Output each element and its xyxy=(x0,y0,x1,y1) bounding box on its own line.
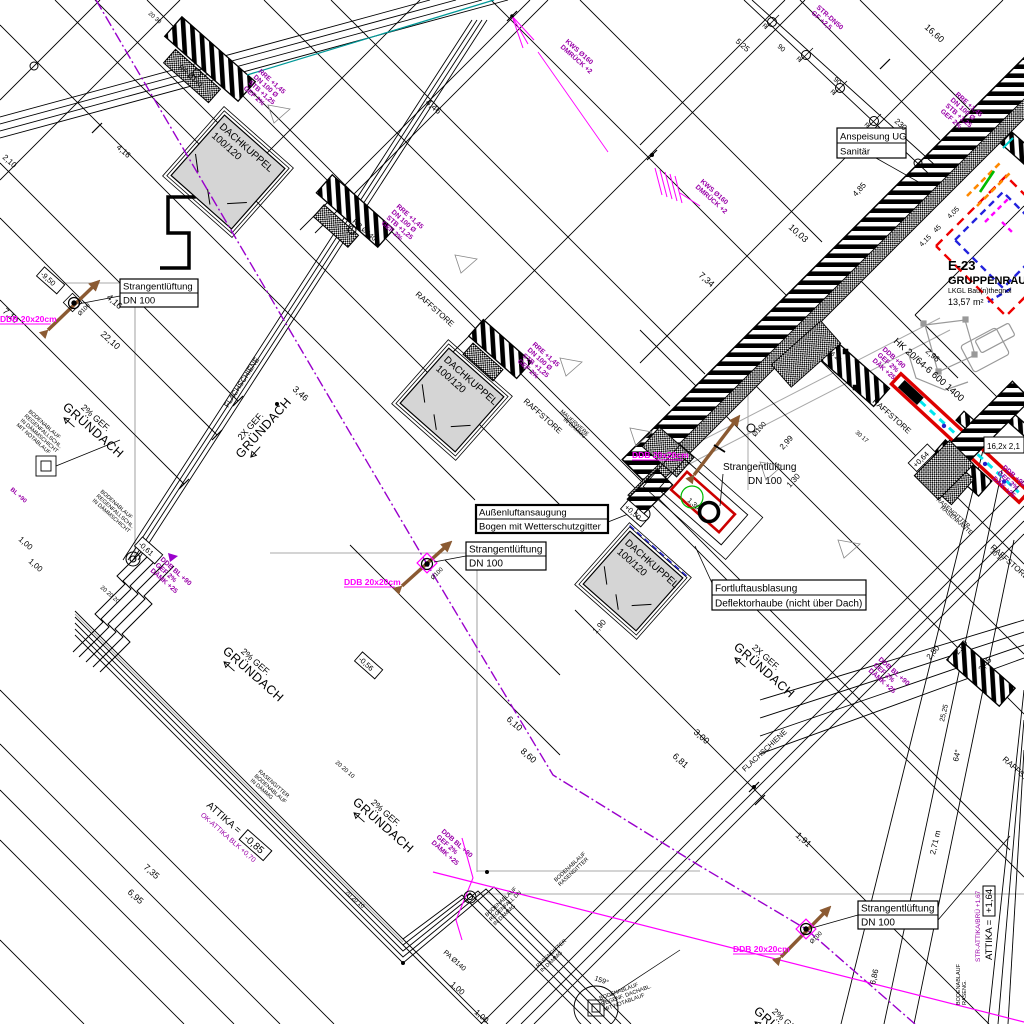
svg-text:E-23: E-23 xyxy=(948,258,975,273)
svg-text:GRUPPENRAUM: GRUPPENRAUM xyxy=(948,275,1024,287)
svg-text:DDB 20x20cm: DDB 20x20cm xyxy=(344,577,401,587)
svg-text:Strangentlüftung: Strangentlüftung xyxy=(861,904,934,915)
svg-text:Außenluftansaugung: Außenluftansaugung xyxy=(479,508,567,519)
svg-text:Fortluftausblasung: Fortluftausblasung xyxy=(715,584,797,595)
svg-text:+1,64: +1,64 xyxy=(984,889,995,913)
svg-text:LKGL Bau(n)thegnol: LKGL Bau(n)thegnol xyxy=(948,288,1012,295)
svg-text:Strangentlüftung: Strangentlüftung xyxy=(723,462,796,473)
svg-text:DN 100: DN 100 xyxy=(123,296,155,307)
svg-text:13,57 m²: 13,57 m² xyxy=(948,297,984,307)
svg-text:DDB 20x20cm: DDB 20x20cm xyxy=(632,450,689,460)
svg-text:ATTIKA =: ATTIKA = xyxy=(984,919,995,960)
svg-text:DN 100: DN 100 xyxy=(469,559,503,570)
svg-text:Bogen mit Wetterschutzgitter: Bogen mit Wetterschutzgitter xyxy=(479,522,601,533)
svg-text:Strangentlüftung: Strangentlüftung xyxy=(123,282,193,293)
svg-text:Strangentlüftung: Strangentlüftung xyxy=(469,545,542,556)
svg-text:DDB 20x20cm: DDB 20x20cm xyxy=(733,944,790,954)
svg-text:Sanitär: Sanitär xyxy=(840,147,870,158)
svg-text:RASENG.: RASENG. xyxy=(962,980,968,1005)
svg-text:STR-ATTIKA/BRÜ +1,67: STR-ATTIKA/BRÜ +1,67 xyxy=(974,890,982,962)
svg-text:Deflektorhaube (nicht über Dac: Deflektorhaube (nicht über Dach) xyxy=(715,599,862,610)
svg-text:DN 100: DN 100 xyxy=(861,918,895,929)
svg-text:16,2x 2,1: 16,2x 2,1 xyxy=(987,442,1020,451)
svg-text:DDB 20x20cm: DDB 20x20cm xyxy=(0,314,57,324)
svg-text:Anspeisung UG: Anspeisung UG xyxy=(840,132,907,143)
